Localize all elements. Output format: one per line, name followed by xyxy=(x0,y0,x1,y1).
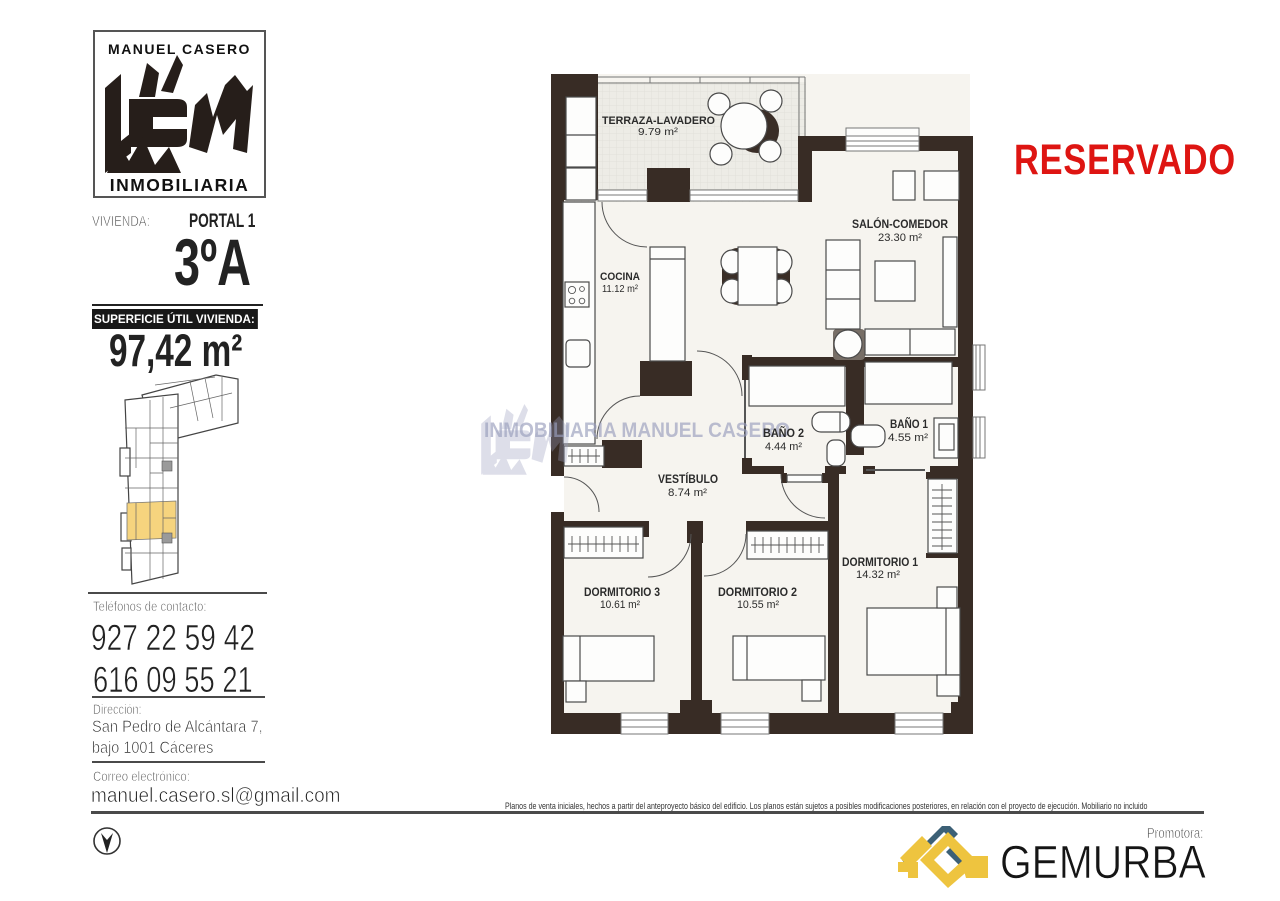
svg-text:10.55 m²: 10.55 m² xyxy=(737,599,779,611)
svg-text:11.12 m²: 11.12 m² xyxy=(602,283,638,295)
svg-text:COCINA: COCINA xyxy=(600,271,640,283)
svg-text:DORMITORIO 3: DORMITORIO 3 xyxy=(584,585,660,599)
svg-text:VESTÍBULO: VESTÍBULO xyxy=(658,471,718,486)
svg-text:14.32 m²: 14.32 m² xyxy=(856,569,900,581)
svg-text:BAÑO 1: BAÑO 1 xyxy=(890,418,929,431)
svg-text:10.61 m²: 10.61 m² xyxy=(600,599,640,611)
svg-text:8.74 m²: 8.74 m² xyxy=(668,487,707,499)
svg-text:9.79 m²: 9.79 m² xyxy=(638,126,679,138)
svg-text:SALÓN-COMEDOR: SALÓN-COMEDOR xyxy=(852,216,948,231)
svg-text:4.44 m²: 4.44 m² xyxy=(765,441,802,453)
svg-text:4.55 m²: 4.55 m² xyxy=(888,432,928,444)
svg-text:BAÑO 2: BAÑO 2 xyxy=(763,427,804,440)
svg-text:DORMITORIO 2: DORMITORIO 2 xyxy=(718,585,797,599)
svg-text:DORMITORIO 1: DORMITORIO 1 xyxy=(842,555,918,569)
svg-text:23.30 m²: 23.30 m² xyxy=(878,232,922,244)
